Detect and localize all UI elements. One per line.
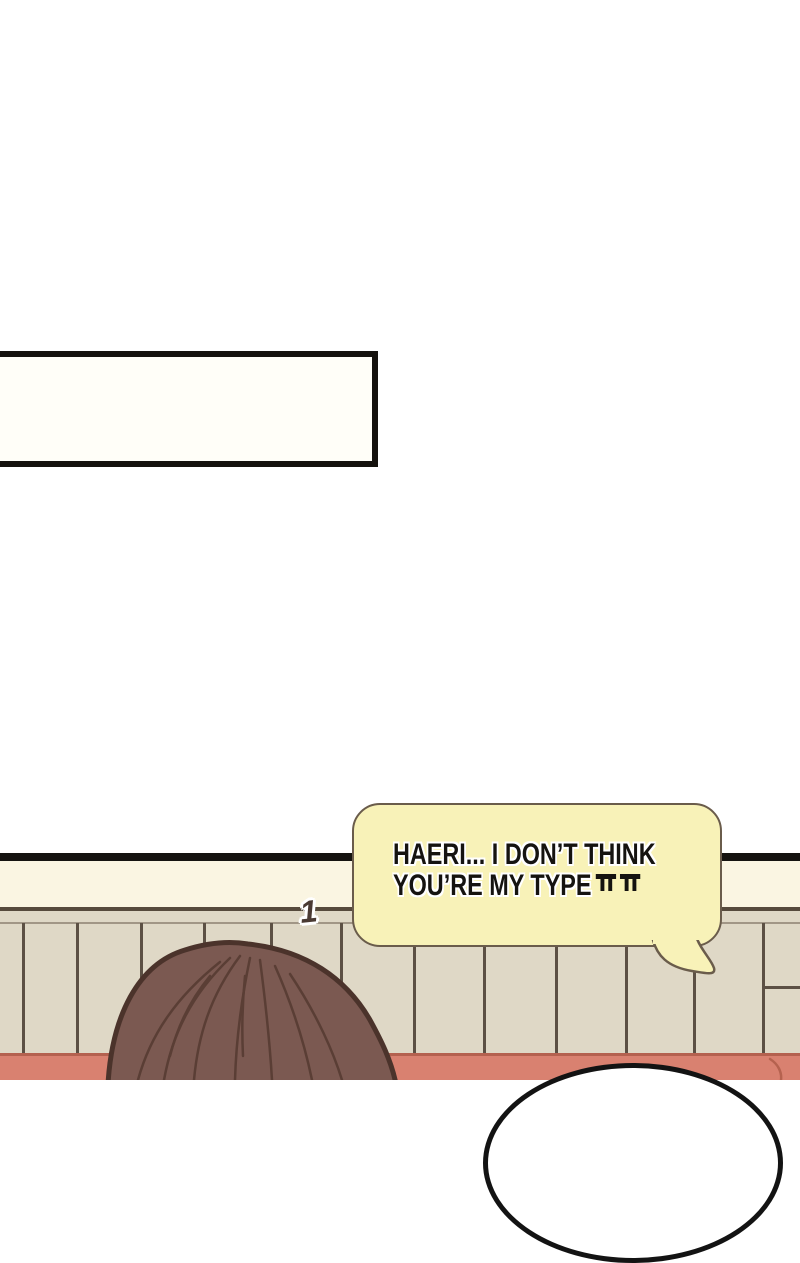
plank-line	[22, 923, 25, 1053]
speech-bubble-text: HAERI... I DON’T THINK YOU’RE MY TYPE	[393, 839, 656, 901]
plank-line	[76, 923, 79, 1053]
effect-number-label: 1	[298, 893, 319, 931]
white-head-shape	[483, 1063, 783, 1263]
speech-line-2-text: YOU’RE MY TYPE	[393, 869, 592, 902]
caption-box	[0, 351, 378, 467]
crying-emoticon-icon	[595, 874, 615, 896]
webtoon-panel: { "page": { "background": "#ffffff" }, "…	[0, 0, 800, 1080]
speech-line-2: YOU’RE MY TYPE	[393, 870, 656, 901]
speech-line-1: HAERI... I DON’T THINK	[393, 839, 656, 870]
speech-bubble-tail	[648, 940, 738, 985]
speech-bubble: HAERI... I DON’T THINK YOU’RE MY TYPE	[352, 803, 722, 947]
brown-hair-head	[90, 936, 410, 1080]
floor-crease-line	[760, 1050, 800, 1080]
plank-cross-line	[763, 986, 800, 989]
crying-emoticon-icon	[620, 874, 640, 896]
